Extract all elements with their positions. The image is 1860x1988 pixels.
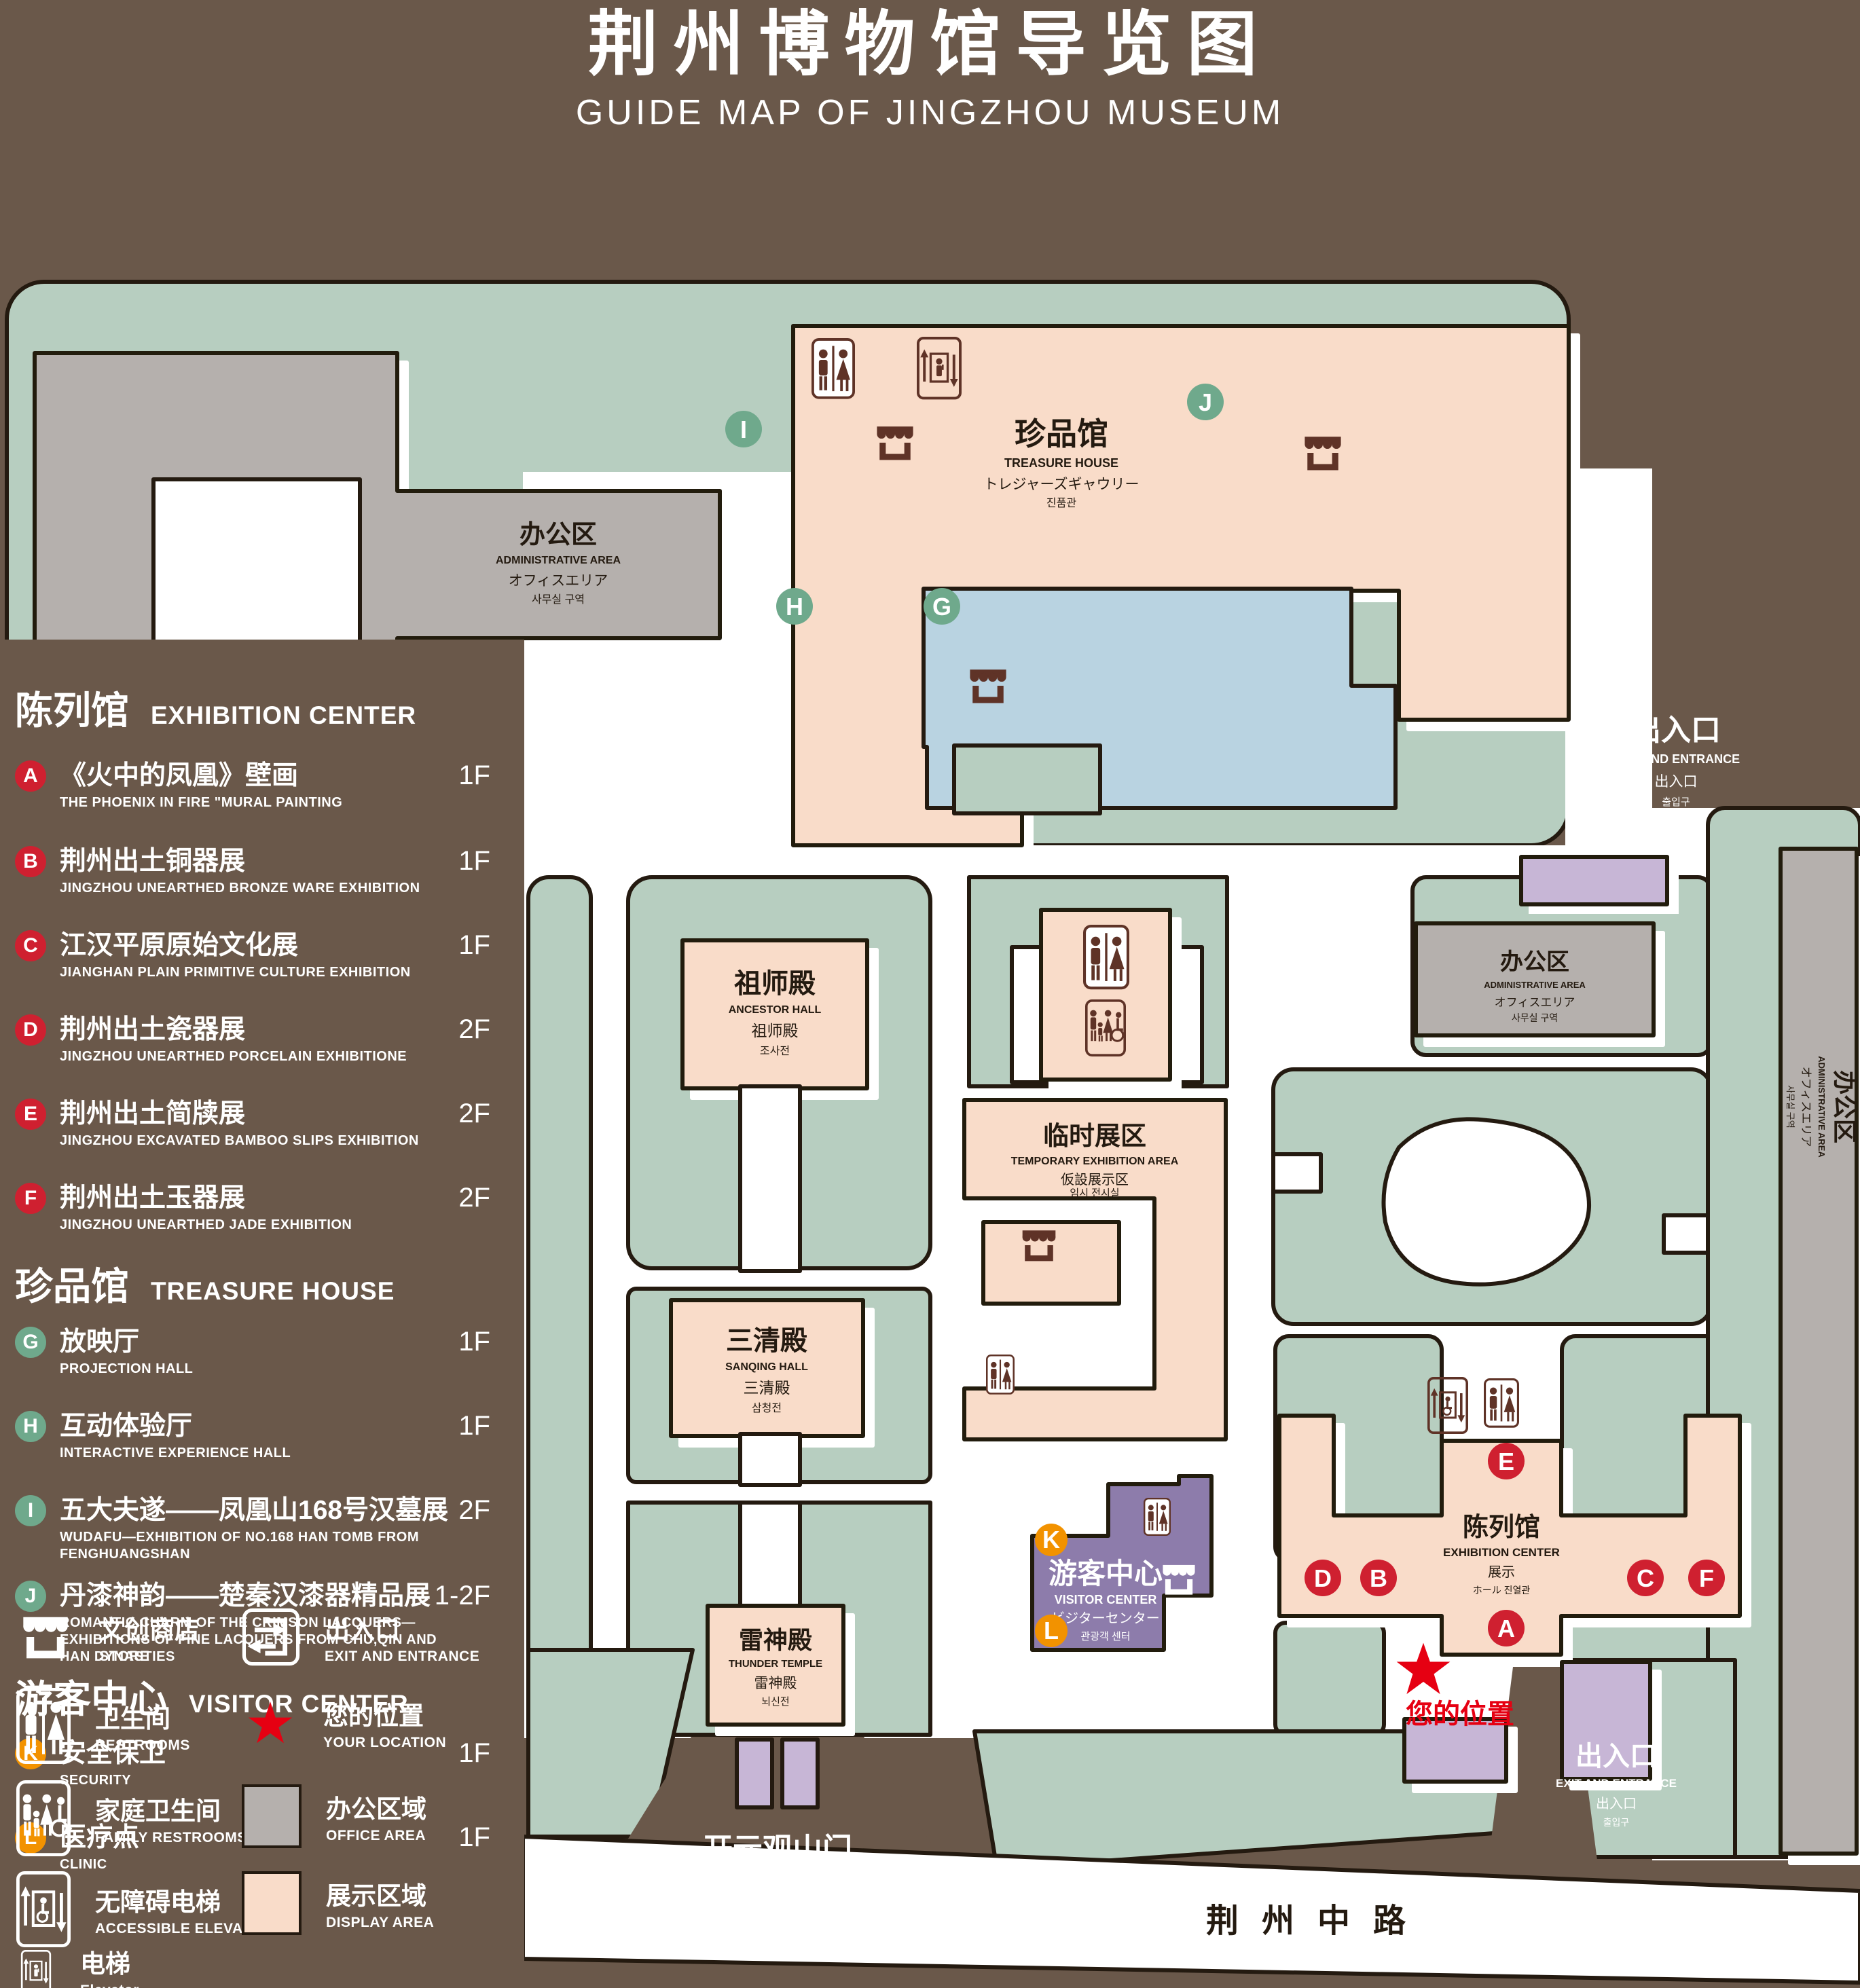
legend-exit: 出入口EXIT AND ENTRANCE — [242, 1608, 479, 1666]
marker-i: I — [725, 411, 762, 447]
legend-display-area: 展示区域DISPLAY AREA — [242, 1871, 434, 1935]
svg-text:KAIYUAN TEMPLE GATE: KAIYUAN TEMPLE GATE — [709, 1871, 846, 1883]
item-badge: F — [15, 1183, 46, 1214]
section-title-en: TREASURE HOUSE — [151, 1277, 395, 1306]
svg-text:H: H — [786, 593, 803, 621]
family-restrooms-icon — [16, 1780, 71, 1856]
elevator-icon — [16, 1950, 56, 1988]
restrooms-icon — [1485, 1380, 1518, 1427]
your-location-star-icon: ★ — [242, 1695, 299, 1752]
list-item-d: D 荆州出土瓷器展 JINGZHOU UNEARTHED PORCELAIN E… — [15, 1014, 508, 1065]
svg-text:출입구: 출입구 — [1603, 1817, 1630, 1828]
guide-map-poster: 办公区 ADMINISTRATIVE AREA オフィスエリア 사무실 구역 珍… — [0, 0, 1860, 1988]
svg-text:뇌신전: 뇌신전 — [761, 1696, 789, 1708]
list-item-g: G 放映厅 PROJECTION HALL 1F — [15, 1327, 508, 1378]
svg-text:オフィスエリア: オフィスエリア — [509, 573, 608, 589]
svg-text:사무실 구역: 사무실 구역 — [1785, 1085, 1795, 1128]
list-item-b: B 荆州出土铜器展 JINGZHOU UNEARTHED BRONZE WARE… — [15, 846, 508, 897]
item-badge: H — [15, 1411, 46, 1442]
svg-text:EXIT AND ENTRANCE: EXIT AND ENTRANCE — [1556, 1777, 1677, 1790]
svg-text:ホール 진열관: ホール 진열관 — [1473, 1585, 1531, 1596]
section-exhibition-center: 陈列馆 EXHIBITION CENTER — [15, 680, 416, 735]
svg-text:办公区: 办公区 — [519, 521, 597, 549]
restrooms-icon — [987, 1355, 1013, 1393]
header: 荆州博物馆导览图 GUIDE MAP OF JINGZHOU MUSEUM — [0, 0, 1860, 133]
item-badge: B — [15, 846, 46, 877]
gate-pillar-right — [782, 1739, 818, 1807]
marker-b: B — [1360, 1560, 1397, 1596]
svg-text:임시 전시실: 임시 전시실 — [1070, 1188, 1119, 1199]
path-right — [1565, 468, 1652, 850]
floor-label: 1F — [458, 846, 490, 877]
list-item-h: H 互动体验厅 INTERACTIVE EXPERIENCE HALL 1F — [15, 1411, 508, 1462]
office-area-swatch — [242, 1784, 302, 1848]
svg-text:トレジャーズギャウリー: トレジャーズギャウリー — [984, 477, 1139, 492]
floor-label: 1F — [458, 930, 490, 961]
svg-text:사무실 구역: 사무실 구역 — [1512, 1012, 1558, 1023]
park-pond — [1384, 1119, 1590, 1284]
floor-label: 1F — [458, 1822, 490, 1853]
section-treasure-house: 珍品馆 TREASURE HOUSE — [15, 1256, 395, 1311]
page-title: 荆州博物馆导览图 — [0, 0, 1860, 80]
floor-label: 1F — [458, 1738, 490, 1769]
svg-text:三清殿: 三清殿 — [744, 1379, 790, 1397]
item-badge: A — [15, 760, 46, 792]
page-subtitle: GUIDE MAP OF JINGZHOU MUSEUM — [0, 92, 1860, 133]
section-title-zh: 陈列馆 — [15, 680, 129, 735]
svg-text:ADMINISTRATIVE AREA: ADMINISTRATIVE AREA — [1817, 1056, 1827, 1158]
list-item-e: E 荆州出土简牍展 JINGZHOU EXCAVATED BAMBOO SLIP… — [15, 1099, 508, 1149]
svg-text:EXHIBITION CENTER: EXHIBITION CENTER — [1443, 1546, 1560, 1559]
svg-text:관광객 센터: 관광객 센터 — [1080, 1631, 1130, 1642]
svg-text:祖师殿: 祖师殿 — [734, 969, 816, 999]
svg-text:C: C — [1637, 1564, 1654, 1592]
floor-label: 2F — [458, 1183, 490, 1213]
marker-k: K — [1035, 1524, 1068, 1556]
svg-text:L: L — [1044, 1617, 1059, 1644]
restrooms-icon — [16, 1688, 71, 1764]
section-title-zh: 珍品馆 — [15, 1256, 129, 1311]
svg-text:K: K — [1042, 1526, 1060, 1553]
floor-label: 2F — [458, 1495, 490, 1526]
building-admin-right-strip — [1781, 849, 1857, 1854]
svg-text:出入口: 出入口 — [1596, 1796, 1637, 1811]
legend-office-area: 办公区域OFFICE AREA — [242, 1784, 426, 1848]
item-badge: C — [15, 930, 46, 961]
list-item-i: I 五大夫遂——凤凰山168号汉墓展 WUDAFU—EXHIBITION OF … — [15, 1495, 508, 1563]
display-area-swatch — [242, 1871, 302, 1935]
restrooms-icon — [813, 339, 854, 398]
svg-text:ビジターセンター: ビジターセンター — [1051, 1610, 1160, 1626]
item-badge: G — [15, 1327, 46, 1358]
your-location-label: 您的位置 — [1406, 1699, 1514, 1729]
svg-text:展示: 展示 — [1488, 1565, 1515, 1580]
svg-text:D: D — [1314, 1564, 1332, 1592]
marker-d: D — [1305, 1560, 1341, 1596]
svg-text:B: B — [1370, 1564, 1387, 1592]
floor-label: 1F — [458, 1327, 490, 1357]
exit-icon — [242, 1608, 300, 1666]
svg-text:珍品馆: 珍品馆 — [1015, 416, 1108, 452]
floor-label: 2F — [458, 1099, 490, 1129]
svg-text:出入口: 出入口 — [1575, 1742, 1657, 1771]
svg-text:TEMPORARY EXHIBITION AREA: TEMPORARY EXHIBITION AREA — [1011, 1156, 1179, 1167]
marker-e: E — [1488, 1443, 1525, 1479]
accessible-elevator-icon — [16, 1871, 71, 1947]
legend-accessible-elevator: 无障碍电梯ACCESSIBLE ELEVATOR — [16, 1871, 273, 1947]
svg-text:F: F — [1699, 1564, 1714, 1592]
svg-text:雷神殿: 雷神殿 — [739, 1626, 812, 1654]
path-temple-2 — [740, 1434, 800, 1485]
road-label: 荆州中路 — [1206, 1903, 1429, 1939]
building-gatehouse-north — [1521, 857, 1667, 904]
svg-text:TREASURE HOUSE: TREASURE HOUSE — [1004, 456, 1118, 470]
restrooms-icon — [1144, 1498, 1170, 1535]
svg-text:ADMINISTRATIVE AREA: ADMINISTRATIVE AREA — [1484, 980, 1586, 990]
svg-text:办公区: 办公区 — [1831, 1070, 1859, 1143]
floor-label: 1F — [458, 760, 490, 791]
list-item-c: C 江汉平原原始文化展 JIANGHAN PLAIN PRIMITIVE CUL… — [15, 930, 508, 981]
legend-store: 文创商店STORE — [16, 1608, 200, 1666]
svg-text:陈列馆: 陈列馆 — [1463, 1513, 1540, 1542]
svg-text:삼청전: 삼청전 — [752, 1402, 782, 1414]
restrooms-icon — [1084, 926, 1128, 988]
list-item-a: A 《火中的凤凰》壁画 THE PHOENIX IN FIRE "MURAL P… — [15, 760, 508, 811]
item-badge: D — [15, 1014, 46, 1046]
marker-f: F — [1688, 1560, 1725, 1596]
svg-text:游客中心: 游客中心 — [1048, 1558, 1163, 1589]
svg-text:VISITOR CENTER: VISITOR CENTER — [1055, 1593, 1157, 1606]
floor-label: 1-2F — [435, 1581, 490, 1611]
svg-text:진품관: 진품관 — [1046, 497, 1076, 509]
svg-text:THUNDER TEMPLE: THUNDER TEMPLE — [729, 1658, 822, 1670]
marker-j: J — [1187, 384, 1224, 420]
marker-a: A — [1488, 1610, 1525, 1646]
svg-text:A: A — [1497, 1615, 1515, 1642]
svg-text:雷神殿: 雷神殿 — [754, 1676, 797, 1691]
legend-your-location: ★ 您的位置YOUR LOCATION — [242, 1695, 446, 1752]
svg-text:办公区: 办公区 — [1500, 949, 1569, 975]
legend-elevator: 电梯Elevator — [16, 1943, 139, 1988]
path-temple-1 — [740, 1086, 800, 1271]
list-item-f: F 荆州出土玉器展 JINGZHOU UNEARTHED JADE EXHIBI… — [15, 1183, 508, 1234]
svg-text:ANCESTOR HALL: ANCESTOR HALL — [729, 1004, 822, 1016]
section-title-en: EXHIBITION CENTER — [151, 701, 416, 730]
svg-text:조사전: 조사전 — [760, 1045, 790, 1057]
lawn-lakeside — [954, 745, 1100, 813]
svg-text:출입구: 출입구 — [1662, 796, 1690, 808]
svg-text:出入口: 出入口 — [1631, 714, 1721, 747]
svg-text:祖师殿: 祖师殿 — [752, 1022, 799, 1039]
svg-text:사무실 구역: 사무실 구역 — [532, 593, 585, 606]
item-badge: E — [15, 1099, 46, 1130]
marker-g: G — [924, 588, 960, 625]
item-badge: I — [15, 1495, 46, 1526]
legend-family-restrooms: 家庭卫生间FAMILY RESTROOMS — [16, 1780, 247, 1856]
lawn-exhibit-sw — [1275, 1623, 1384, 1735]
marker-h: H — [776, 588, 813, 625]
svg-text:SANQING HALL: SANQING HALL — [725, 1361, 808, 1373]
svg-text:仮設展示区: 仮設展示区 — [1061, 1172, 1129, 1188]
svg-text:J: J — [1199, 388, 1212, 416]
svg-text:临时展区: 临时展区 — [1043, 1122, 1146, 1151]
svg-text:EXIT AND ENTRANCE: EXIT AND ENTRANCE — [1612, 752, 1740, 766]
path-temple-3 — [740, 1503, 800, 1608]
park-path-east — [1664, 1215, 1711, 1253]
lawn-left-strip — [528, 877, 591, 1699]
store-icon — [16, 1608, 75, 1666]
gate-pillar-left — [737, 1739, 772, 1807]
svg-text:ADMINISTRATIVE AREA: ADMINISTRATIVE AREA — [496, 555, 621, 566]
svg-text:オフィスエリア: オフィスエリア — [1800, 1067, 1812, 1147]
park-path-west — [1273, 1154, 1321, 1192]
floor-label: 1F — [458, 1411, 490, 1441]
svg-text:I: I — [740, 416, 747, 443]
legend-restrooms: 卫生间RESTROOMS — [16, 1688, 190, 1764]
svg-text:G: G — [932, 593, 951, 621]
floor-label: 2F — [458, 1014, 490, 1045]
svg-text:开元观山门: 开元观山门 — [703, 1833, 852, 1866]
svg-text:オフィスエリア: オフィスエリア — [1495, 996, 1575, 1009]
svg-text:三清殿: 三清殿 — [726, 1326, 807, 1356]
marker-l: L — [1035, 1615, 1068, 1647]
svg-text:開元観山門: 開元観山門 — [742, 1889, 814, 1904]
marker-c: C — [1627, 1560, 1664, 1596]
svg-text:산문을 열다: 산문을 열다 — [752, 1910, 802, 1921]
svg-text:E: E — [1498, 1448, 1514, 1475]
svg-text:出入口: 出入口 — [1655, 774, 1698, 790]
